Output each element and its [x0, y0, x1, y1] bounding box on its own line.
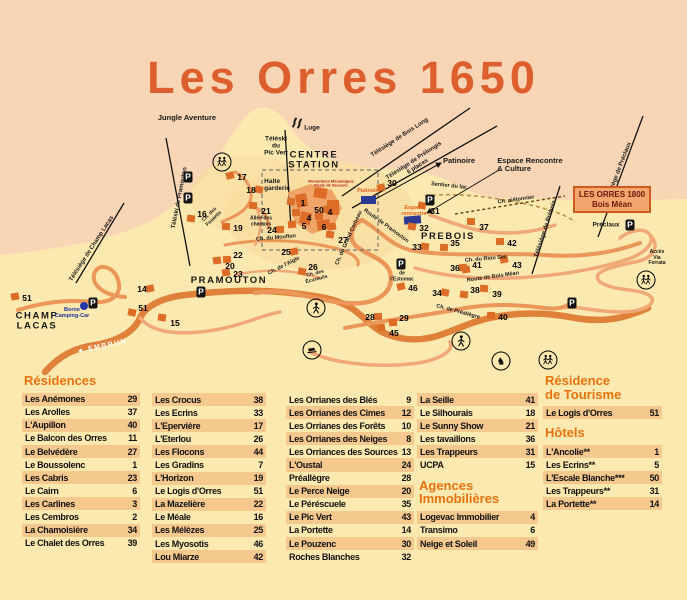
map-number: 42	[507, 238, 516, 248]
building	[328, 222, 337, 230]
residence-number: 9	[406, 395, 411, 405]
building	[407, 222, 416, 230]
building	[421, 243, 430, 251]
residence-number: 1	[654, 447, 659, 457]
residence-number: 6	[530, 525, 535, 535]
directory-row: L'Ancolie**1	[543, 445, 662, 458]
directory-row: Les Carlines3	[22, 497, 140, 510]
directory-row: Le Pouzenc30	[286, 537, 414, 550]
building	[389, 319, 397, 327]
map-number: 4	[307, 213, 312, 223]
residence-name: Les Arolles	[25, 407, 70, 417]
residence-number: 35	[402, 499, 411, 509]
directory-row: L'Horizon19	[152, 472, 266, 485]
parking-icon: P	[626, 220, 635, 231]
residence-number: 36	[526, 434, 535, 444]
map-number: 6	[322, 222, 327, 232]
residence-number: 42	[254, 552, 263, 562]
directory-row: Les Orrianes des Forêts10	[286, 419, 414, 432]
residence-number: 5	[654, 460, 659, 470]
map-number: 34	[432, 288, 441, 298]
residence-number: 15	[526, 460, 535, 470]
residence-number: 14	[402, 525, 411, 535]
directory-row: Le Sunny Show21	[417, 419, 538, 432]
map-number: 41	[472, 260, 481, 270]
map-number: 15	[170, 318, 179, 328]
directory-row: L'Epervière17	[152, 419, 266, 432]
residence-name: L'Epervière	[155, 421, 200, 431]
map-label: Téléski du Pic Vert	[264, 135, 288, 156]
directory-row: Les Arolles37	[22, 406, 140, 419]
residence-name: L'Aupillon	[25, 420, 66, 430]
directory-row: La Portette14	[286, 524, 414, 537]
directory-row: Les Myosotis46	[152, 537, 266, 550]
directory-row: Les Cabris23	[22, 471, 140, 484]
residence-number: 30	[402, 539, 411, 549]
building	[480, 285, 489, 293]
residence-name: La Chamoisière	[25, 525, 88, 535]
residence-name: La Portette**	[546, 499, 596, 509]
residence-number: 6	[132, 486, 137, 496]
residence-number: 21	[526, 421, 535, 431]
parking-icon: P	[397, 259, 406, 270]
map-label: Patinoire	[443, 157, 475, 165]
residence-name: L'Escale Blanche***	[546, 473, 624, 483]
building	[377, 324, 386, 332]
residence-name: Les Trappeurs	[420, 447, 478, 457]
residence-name: Le Pic Vert	[289, 512, 332, 522]
map-number: 45	[389, 328, 398, 338]
residence-number: 33	[254, 408, 263, 418]
building	[127, 308, 136, 317]
building	[213, 257, 222, 265]
residence-name: Les Trappeurs**	[546, 486, 610, 496]
directory-row: Le Péréscuele35	[286, 498, 414, 511]
directory-row: Les Trappeurs31	[417, 445, 538, 458]
map-label: Espace rencontre	[401, 205, 426, 217]
directory-column: Les Orrianes des Blés9Les Orrianes des C…	[286, 374, 414, 563]
directory-section-header: Agences Immobilières	[419, 479, 538, 506]
map-label: Route de Bois Méan	[467, 270, 520, 283]
residence-name: Les Orrianes des Neiges	[289, 434, 387, 444]
map-label: CHAMP LACAS	[16, 312, 59, 333]
directory-row: Les Cembros2	[22, 510, 140, 523]
residence-name: Les Myosotis	[155, 539, 208, 549]
residence-name: Les Ecrins**	[546, 460, 595, 470]
residence-number: 22	[254, 499, 263, 509]
building	[225, 171, 234, 180]
residence-name: L'Oustal	[289, 460, 322, 470]
map-label: Patinoire	[357, 188, 381, 194]
map-number: 51	[138, 303, 147, 313]
map-label: Ch. de Préallègre	[436, 303, 481, 320]
map-label: Accès Via Ferrata	[649, 250, 666, 267]
directory-row: Les Crocus38	[152, 393, 266, 406]
orres-1800-line1: LES ORRES 1800	[579, 190, 645, 200]
parking-icon: P	[197, 287, 206, 298]
directory-spacer	[152, 374, 266, 393]
directory-row: Les Orrianes des Cimes12	[286, 406, 414, 419]
horse-riding-icon	[492, 352, 511, 371]
map-label: Jungle Aventure	[158, 114, 216, 122]
directory-row: Neige et Soleil49	[417, 537, 538, 550]
map-number: 50	[314, 205, 323, 215]
directory-column: Les Crocus38Les Ecrins33L'Epervière17L'E…	[152, 374, 266, 563]
residence-name: Les Ecrins	[155, 408, 198, 418]
map-number: 30	[387, 178, 396, 188]
building	[460, 290, 469, 298]
residence-name: L'Horizon	[155, 473, 193, 483]
residence-name: Le Boussolenc	[25, 460, 85, 470]
map-number: 18	[246, 185, 255, 195]
residence-number: 18	[526, 408, 535, 418]
map-number: 4	[328, 207, 333, 217]
map-label: Préclaux	[592, 221, 619, 228]
residence-name: Les Gradins	[155, 460, 204, 470]
residence-number: 32	[402, 552, 411, 562]
building	[396, 282, 405, 291]
parking-icon: P	[184, 193, 193, 204]
directory-row: Lou Miarze42	[152, 550, 266, 563]
directory-row: Les Mélèzes25	[152, 524, 266, 537]
residence-number: 46	[254, 539, 263, 549]
building	[10, 292, 19, 300]
directory-row: Le Cairn6	[22, 484, 140, 497]
map-number: 19	[233, 223, 242, 233]
residence-number: 7	[258, 460, 263, 470]
map-number: 24	[267, 225, 276, 235]
directory-row: Le Méale16	[152, 511, 266, 524]
residence-number: 49	[526, 539, 535, 549]
directory-row: Le Belvédère27	[22, 445, 140, 458]
map-label: Luge	[304, 124, 320, 131]
directory-section-header: Résidence de Tourisme	[545, 374, 662, 401]
residence-number: 3	[132, 499, 137, 509]
map-number: 39	[492, 289, 501, 299]
building	[249, 202, 258, 210]
map-number: 43	[512, 260, 521, 270]
map-number: 16	[197, 209, 206, 219]
directory-section-header: Hôtels	[545, 426, 662, 440]
building	[440, 244, 448, 252]
map-number: 33	[412, 242, 421, 252]
snow-groomer-icon	[303, 341, 322, 360]
building	[222, 223, 230, 230]
residence-number: 2	[132, 512, 137, 522]
residence-name: La Mazelière	[155, 499, 205, 509]
residence-name: Les Orriances des Sources	[289, 447, 398, 457]
map-number: 1	[301, 198, 306, 208]
residence-number: 11	[128, 433, 137, 443]
residence-name: Le Perce Neige	[289, 486, 349, 496]
residence-name: Les Anémones	[25, 394, 85, 404]
directory-row: Transimo6	[417, 524, 538, 537]
directory-row: Les Orrianes des Neiges8	[286, 432, 414, 445]
residence-name: Les Cembros	[25, 512, 79, 522]
residence-number: 23	[128, 473, 137, 483]
directory-row: Le Perce Neige20	[286, 485, 414, 498]
residence-number: 12	[402, 408, 411, 418]
residence-name: La Portette	[289, 525, 333, 535]
residence-number: 14	[650, 499, 659, 509]
residence-number: 34	[128, 525, 137, 535]
directory-row: Les Trappeurs**31	[543, 484, 662, 497]
directory-row: La Chamoisière34	[22, 524, 140, 537]
residence-name: Préallègre	[289, 473, 330, 483]
residence-name: La Seille	[420, 395, 454, 405]
building	[288, 221, 297, 229]
residence-number: 31	[526, 447, 535, 457]
building	[440, 288, 449, 296]
residence-number: 16	[254, 512, 263, 522]
map-number: 29	[399, 313, 408, 323]
map-number: 51	[22, 293, 31, 303]
residence-number: 27	[128, 447, 137, 457]
residence-name: Lou Miarze	[155, 552, 199, 562]
residence-number: 13	[402, 447, 411, 457]
directory-row: UCPA15	[417, 458, 538, 471]
building	[187, 214, 196, 222]
residence-name: Les Orrianes des Cimes	[289, 408, 385, 418]
residence-number: 44	[254, 447, 263, 457]
residence-name: Les Carlines	[25, 499, 75, 509]
directory-section-header: Résidences	[24, 374, 140, 388]
residence-number: 41	[526, 395, 535, 405]
residence-name: Transimo	[420, 525, 458, 535]
residence-number: 1	[132, 460, 137, 470]
residence-name: Neige et Soleil	[420, 539, 477, 549]
building	[276, 226, 284, 233]
directory-row: Les Anémones29	[22, 393, 140, 406]
building	[487, 312, 495, 319]
residence-name: UCPA	[420, 460, 444, 470]
page-title: Les Orres 1650	[0, 52, 687, 104]
map-number: 14	[137, 284, 146, 294]
residence-number: 39	[128, 538, 137, 548]
directory-spacer	[286, 374, 414, 393]
map-number: 38	[470, 285, 479, 295]
map-number: 27	[338, 235, 347, 245]
directory-row: Les Ecrins33	[152, 406, 266, 419]
map-number: 32	[419, 223, 428, 233]
residence-number: 29	[128, 394, 137, 404]
directory-row: Les Gradins7	[152, 458, 266, 471]
directory-row: Les tavaillons36	[417, 432, 538, 445]
building	[462, 265, 471, 273]
building	[326, 230, 335, 238]
directory-row: Le Balcon des Orres11	[22, 432, 140, 445]
directory-spacer	[417, 374, 538, 393]
map-number: 35	[450, 238, 459, 248]
residence-name: Le Belvédère	[25, 447, 77, 457]
residence-name: Le Méale	[155, 512, 191, 522]
residence-number: 38	[254, 395, 263, 405]
residence-name: Le Logis d'Orres	[155, 486, 221, 496]
residence-name: Les Crocus	[155, 395, 201, 405]
map-label: PREBOIS	[421, 232, 475, 242]
directory-row: Les Orrianes des Blés9	[286, 393, 414, 406]
directory-row: Roches Blanches32	[286, 550, 414, 563]
building	[467, 218, 475, 225]
residence-name: Logevac Immobilier	[420, 512, 499, 522]
residence-name: Les tavaillons	[420, 434, 475, 444]
parking-icon: P	[426, 195, 435, 206]
building	[254, 185, 263, 193]
map-number: 25	[281, 247, 290, 257]
residence-name: Les Cabris	[25, 473, 68, 483]
map-label: Remontées Mécaniques Poste de Secours	[308, 180, 354, 189]
residence-name: Les Flocons	[155, 447, 204, 457]
residence-name: Le Péréscuele	[289, 499, 346, 509]
map-number: 21	[261, 206, 270, 216]
residence-name: Le Pouzenc	[289, 539, 336, 549]
residence-name: L'Ancolie**	[546, 447, 590, 457]
directory-row: Le Pic Vert43	[286, 511, 414, 524]
residence-number: 19	[254, 473, 263, 483]
directory-row: Le Boussolenc1	[22, 458, 140, 471]
directory-row: L'Aupillon40	[22, 419, 140, 432]
hikers-icon	[637, 271, 656, 290]
directory-row: Le Silhourais18	[417, 406, 538, 419]
orres-1800-line2: Bois Méan	[592, 200, 632, 210]
building	[158, 313, 167, 321]
directory-row: La Portette**14	[543, 497, 662, 510]
walker-icon	[452, 332, 471, 351]
residence-number: 24	[402, 460, 411, 470]
residence-name: Le Sunny Show	[420, 421, 483, 431]
residence-number: 26	[254, 434, 263, 444]
camping-car-icon	[80, 302, 88, 310]
map-number: 26	[308, 262, 317, 272]
map-number: 40	[498, 312, 507, 322]
residence-name: L'Eterlou	[155, 434, 191, 444]
map-number: 36	[450, 263, 459, 273]
map-label: Espace Rencontre & Culture	[497, 157, 562, 174]
map-label: Sentier du lac	[431, 181, 468, 191]
residence-number: 4	[530, 512, 535, 522]
map-number: 46	[408, 283, 417, 293]
residence-number: 51	[254, 486, 263, 496]
directory-row: Le Logis d'Orres51	[152, 485, 266, 498]
map-number: 5	[302, 221, 307, 231]
directory-column: La Seille41Le Silhourais18Le Sunny Show2…	[417, 374, 538, 550]
residence-number: 10	[402, 421, 411, 431]
directory: RésidencesLes Anémones29Les Arolles37L'A…	[0, 372, 687, 600]
residence-name: Le Cairn	[25, 486, 59, 496]
directory-row: Le Chalet des Orres39	[22, 537, 140, 550]
residence-number: 51	[650, 408, 659, 418]
residence-number: 25	[254, 525, 263, 535]
map-label: Ch. piétonnier	[497, 194, 534, 205]
directory-row: Les Orriances des Sources13	[286, 445, 414, 458]
map-number: 22	[233, 250, 242, 260]
residence-number: 20	[402, 486, 411, 496]
map-label: Halte garderie	[264, 178, 290, 192]
residence-name: Le Balcon des Orres	[25, 433, 107, 443]
residence-name: Le Silhourais	[420, 408, 473, 418]
parking-icon: P	[89, 298, 98, 309]
hikers-icon	[213, 153, 232, 172]
directory-row: Les Flocons44	[152, 445, 266, 458]
resort-map-page: ♞	[0, 0, 687, 600]
map-label: PRAMOUTON	[191, 276, 268, 286]
directory-row: Les Ecrins**5	[543, 458, 662, 471]
residence-name: Le Logis d'Orres	[546, 408, 612, 418]
directory-row: L'Eterlou26	[152, 432, 266, 445]
residence-name: Le Chalet des Orres	[25, 538, 104, 548]
building	[292, 209, 300, 216]
building	[374, 313, 382, 320]
residence-name: Les Orrianes des Forêts	[289, 421, 385, 431]
directory-column: Résidence de TourismeLe Logis d'Orres51H…	[543, 374, 662, 510]
directory-row: Logevac Immobilier4	[417, 511, 538, 524]
map-label: Télésiège de Prébois	[534, 200, 559, 259]
residence-number: 37	[128, 407, 137, 417]
directory-row: Préallègre28	[286, 472, 414, 485]
residence-name: Les Orrianes des Blés	[289, 395, 377, 405]
hikers-icon	[539, 351, 558, 370]
walker-icon	[307, 299, 326, 318]
map-number: 28	[365, 312, 374, 322]
map-label: Ch. de l'Aigle	[267, 255, 301, 276]
building	[496, 238, 504, 245]
directory-row: La Seille41	[417, 393, 538, 406]
directory-column: RésidencesLes Anémones29Les Arolles37L'A…	[22, 374, 140, 550]
directory-row: La Mazelière22	[152, 498, 266, 511]
map-number: 23	[233, 269, 242, 279]
residence-number: 43	[402, 512, 411, 522]
les-orres-1800-sign: LES ORRES 1800 Bois Méan	[573, 186, 651, 213]
map-number: 17	[237, 172, 246, 182]
residence-number: 8	[406, 434, 411, 444]
map-number: 37	[479, 222, 488, 232]
map-label: ◄ EMBRUN	[76, 338, 128, 356]
directory-row: L'Oustal24	[286, 458, 414, 471]
map-label: CENTRE STATION	[288, 151, 339, 172]
building	[287, 198, 296, 206]
luge-icon	[290, 115, 304, 134]
directory-row: Le Logis d'Orres51	[543, 406, 662, 419]
map-label: Télésiège de Champ Lacas	[68, 215, 115, 283]
map-number: 31	[430, 206, 439, 216]
residence-number: 28	[402, 473, 411, 483]
map-label: de l'Estomac	[390, 272, 413, 283]
parking-icon: P	[184, 172, 193, 183]
residence-number: 31	[650, 486, 659, 496]
residence-name: Roches Blanches	[289, 552, 360, 562]
residence-number: 17	[254, 421, 263, 431]
residence-number: 50	[650, 473, 659, 483]
directory-row: L'Escale Blanche***50	[543, 471, 662, 484]
parking-icon: P	[568, 298, 577, 309]
residence-name: Les Mélèzes	[155, 525, 204, 535]
residence-number: 40	[128, 420, 137, 430]
